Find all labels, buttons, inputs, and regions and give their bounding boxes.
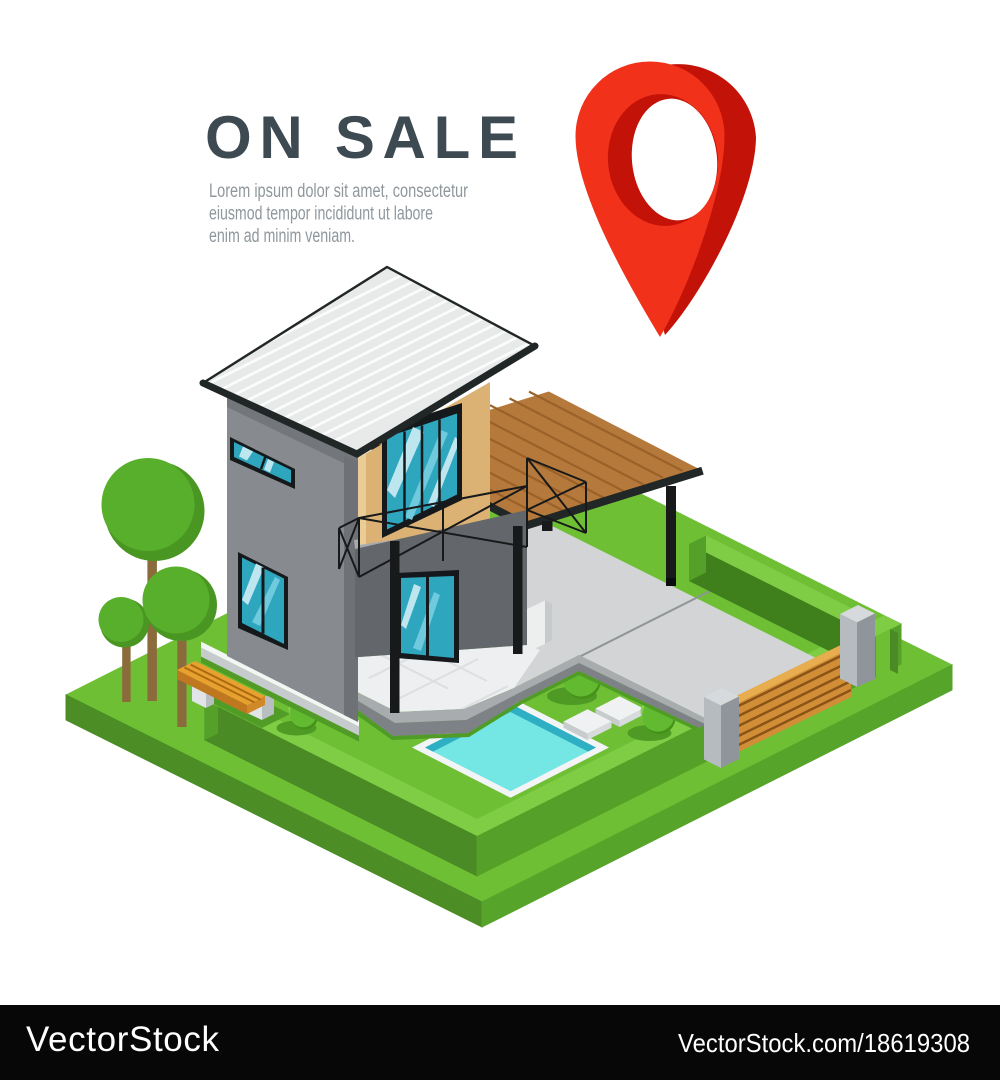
svg-text:eiusmod tempor incididunt ut l: eiusmod tempor incididunt ut labore <box>209 204 433 225</box>
svg-text:enim ad minim veniam.: enim ad minim veniam. <box>209 226 355 247</box>
svg-text:Lorem ipsum dolor sit amet, co: Lorem ipsum dolor sit amet, consectetur <box>209 181 469 202</box>
svg-text:VectorStock.com/18619308: VectorStock.com/18619308 <box>678 1028 970 1058</box>
svg-text:VectorStock: VectorStock <box>26 1020 220 1059</box>
